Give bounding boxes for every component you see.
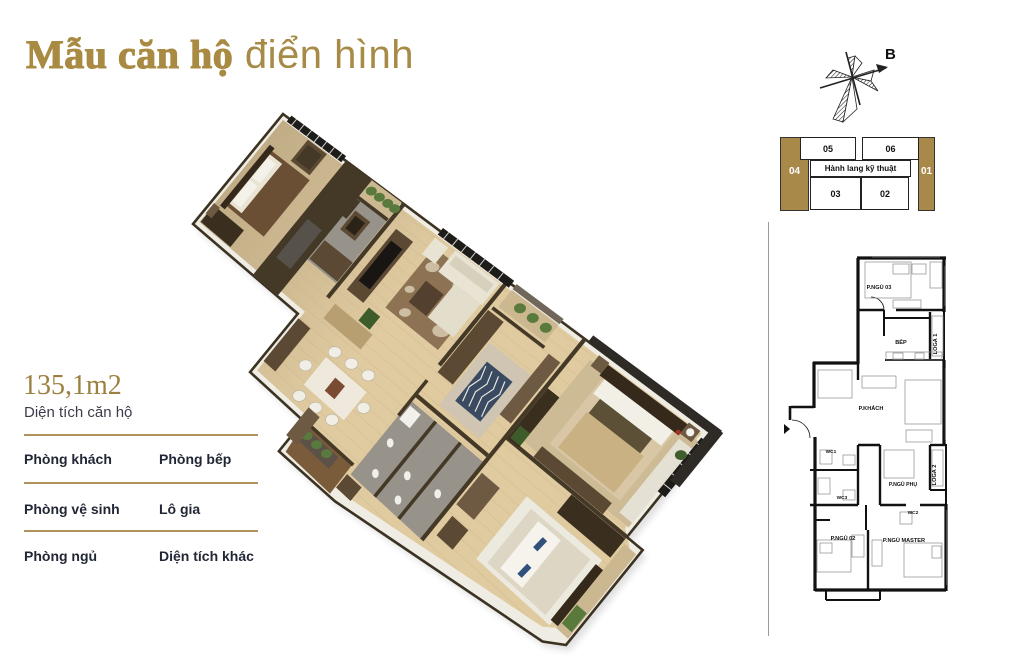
svg-text:P.NGỦ 03: P.NGỦ 03	[867, 284, 892, 291]
svg-text:P.NGỦ MASTER: P.NGỦ MASTER	[883, 537, 925, 544]
svg-text:LOGA 1: LOGA 1	[933, 334, 939, 355]
svg-text:LOGA 2: LOGA 2	[932, 465, 938, 486]
svg-text:WC2: WC2	[908, 510, 919, 516]
svg-text:BẾP: BẾP	[895, 339, 907, 346]
svg-text:P.KHÁCH: P.KHÁCH	[859, 405, 884, 412]
svg-text:B: B	[885, 46, 896, 63]
svg-text:WC1: WC1	[826, 449, 837, 455]
svg-text:WC3: WC3	[837, 495, 848, 501]
svg-text:P.NGỦ PHỤ: P.NGỦ PHỤ	[889, 481, 917, 488]
svg-text:P.NGỦ 02: P.NGỦ 02	[831, 535, 856, 542]
